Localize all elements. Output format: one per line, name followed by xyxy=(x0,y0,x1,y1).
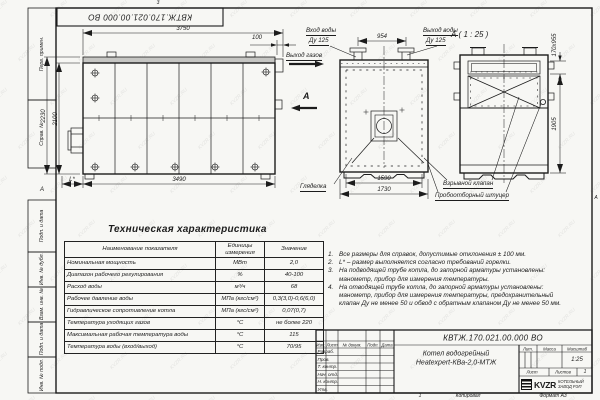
tb-col-data: Дата xyxy=(381,342,392,347)
tb-sheets-label: Листов xyxy=(555,370,571,375)
label-water-outlet-dn: Ду 125 xyxy=(426,37,446,46)
tb-scale-label: Масштаб xyxy=(567,346,587,351)
company-name: КОТЕЛЬНЫЙ ЗАВОД РЭП xyxy=(558,380,584,389)
label-explosion-valve: Взрывной клапан xyxy=(443,180,493,189)
tech-table-title: Техническая характеристика xyxy=(108,224,267,235)
dim-2230: 2230 xyxy=(41,109,47,122)
tb-col-podp: Подп. xyxy=(367,342,378,347)
dim-1905: 1905 xyxy=(552,117,558,130)
company-logo-block: KVZR КОТЕЛЬНЫЙ ЗАВОД РЭП xyxy=(521,377,591,392)
tb-row-t-kontr: Т. контр. xyxy=(318,364,338,369)
section-view-drawing xyxy=(454,44,554,183)
stamp-podp-data-2: Подп. и дата xyxy=(39,323,45,355)
label-sampling-fitting: Пробоотборный штуцер xyxy=(435,192,509,201)
label-sight-glass: Гляделка xyxy=(300,183,326,192)
dim-L-star: L* xyxy=(69,177,75,183)
table-row: Диапазон рабочего регулирования%40-100 xyxy=(65,270,324,282)
front-view-drawing xyxy=(340,46,428,178)
note-4: 4.На отводящей трубе котла, до запорной … xyxy=(328,284,568,309)
tb-col-izm: Изм. xyxy=(316,342,325,347)
dim-3750: 3750 xyxy=(176,26,189,32)
tb-mass-label: Масса xyxy=(543,346,556,351)
table-row: Расход водым³/ч68 xyxy=(65,282,324,294)
side-view-drawing xyxy=(68,52,283,179)
flow-and-section-arrows xyxy=(289,61,324,111)
zone-mark-top: 3 xyxy=(157,0,160,6)
tb-row-razrab: Разраб. xyxy=(318,349,335,354)
bottom-number: 1 xyxy=(419,393,422,399)
notes-list: 1.Все размеры для справок, допустимые от… xyxy=(328,251,568,308)
stamp-inv-dubl: Инв. № дубл. xyxy=(39,253,45,285)
tech-table: Наименование показателя Единицы измерени… xyxy=(64,241,324,354)
zone-marker-right: А xyxy=(594,195,597,201)
copied-label: Копировал xyxy=(456,393,481,399)
product-title-line1: Котел водогрейный xyxy=(423,351,490,358)
dim-1590: 1590 xyxy=(377,176,390,182)
tech-col-name: Наименование показателя xyxy=(65,242,216,258)
zone-marker-left: А xyxy=(40,187,44,193)
dim-170x955: 170х955 xyxy=(552,33,558,56)
table-row: Температура уходящих газов°Сне более 220 xyxy=(65,318,324,330)
tech-table-header-row: Наименование показателя Единицы измерени… xyxy=(65,242,324,258)
doc-number-top-box: КВТЖ.170.021.00.000 ВО xyxy=(88,13,192,22)
stamp-inv-podl: Инв. № подл. xyxy=(39,359,45,391)
label-water-inlet-dn: Ду 125 xyxy=(309,37,329,46)
tb-row-n-kontr: Н. контр. xyxy=(318,379,339,384)
kvzr-logo-text: KVZR xyxy=(534,380,556,390)
table-row: Температура воды (вход/выход)°С70/95 xyxy=(65,342,324,354)
tb-row-utv: Утв. xyxy=(318,387,328,392)
tb-col-dokum: № докум. xyxy=(343,342,362,347)
stamp-sprav-no: Справ. № xyxy=(39,122,45,146)
table-row: Номинальная мощностьМВт2,0 xyxy=(65,258,324,270)
format-label: Формат А3 xyxy=(539,393,566,399)
tb-sheet-label: Лист xyxy=(526,370,537,375)
label-water-inlet: Вход воды xyxy=(306,27,336,36)
note-3: 3.На подводящей трубе котла, до запорной… xyxy=(328,267,568,283)
label-gas-outlet: Выход газов xyxy=(286,52,322,61)
front-view-dimensions xyxy=(330,37,447,199)
stamp-vzam-inv: Взам. инв. № xyxy=(39,288,45,320)
side-view-dimensions xyxy=(44,29,296,188)
dim-2100: 2100 xyxy=(53,112,59,125)
table-row: Рабочее давление водыМПа (кгс/см²)0,3(3,… xyxy=(65,294,324,306)
stamp-podp-data-1: Подп. и дата xyxy=(39,210,45,242)
tech-col-value: Значение xyxy=(265,242,324,258)
section-arrow-letter: А xyxy=(303,91,310,101)
note-1: 1.Все размеры для справок, допустимые от… xyxy=(328,251,568,259)
stamp-perv-primen: Перв. примен. xyxy=(39,37,45,71)
tb-row-prov: Пров. xyxy=(318,357,330,362)
dim-100: 100 xyxy=(252,35,262,41)
tb-lit-label: Лит. xyxy=(523,346,533,351)
dim-954: 954 xyxy=(377,34,387,40)
table-row: Гидравлическое сопротивление котлаМПа (к… xyxy=(65,306,324,318)
section-view-title: А ( 1 : 25 ) xyxy=(451,30,488,39)
title-block-doc-number: КВТЖ.170.021.00.000 ВО xyxy=(443,333,543,342)
dim-1730: 1730 xyxy=(377,187,390,193)
dim-3490: 3490 xyxy=(172,177,185,183)
drawing-sheet: KVZR.RUKVZR.RUKVZR.RUKVZR.RUKVZR.RUKVZR.… xyxy=(0,0,600,400)
kvzr-logo-icon xyxy=(521,379,532,390)
product-title-line2: Heatexpert-КВа-2,0-МТЖ xyxy=(416,360,496,367)
tb-sheets-value: 1 xyxy=(584,369,587,375)
tb-scale-value: 1:25 xyxy=(571,357,583,363)
tech-col-units: Единицы измерения xyxy=(216,242,265,258)
table-row: Максимальная рабочая температура воды°С1… xyxy=(65,330,324,342)
tb-col-list: Лист xyxy=(326,342,337,347)
tb-row-nach-otd: Нач. отд. xyxy=(318,372,339,377)
